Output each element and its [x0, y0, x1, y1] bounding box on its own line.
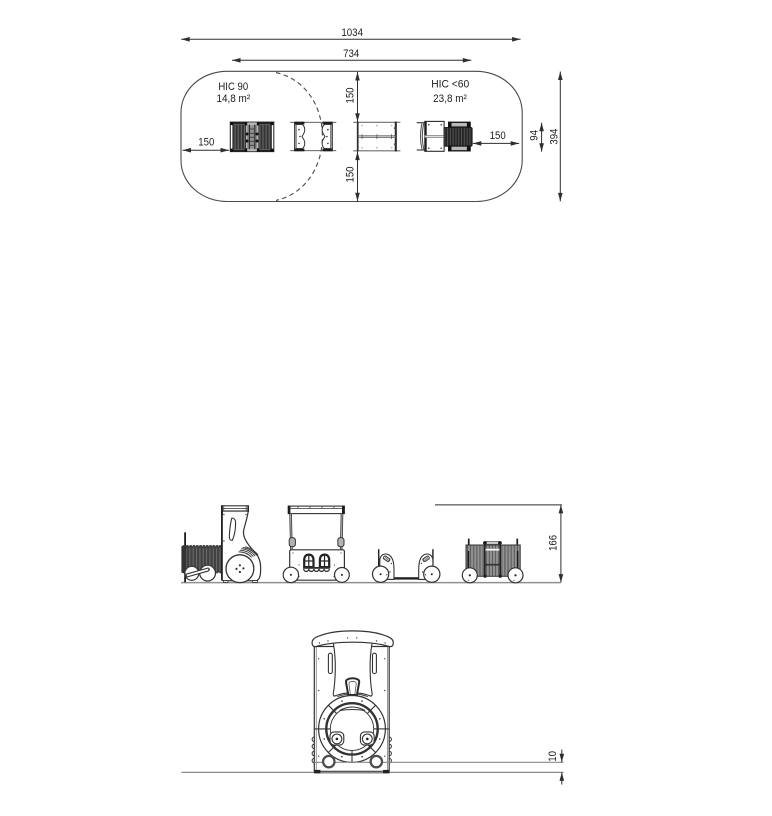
svg-text:94: 94	[529, 130, 541, 141]
svg-text:394: 394	[548, 129, 560, 145]
svg-text:150: 150	[198, 137, 214, 149]
svg-text:HIC <60: HIC <60	[431, 78, 469, 90]
svg-text:23,8 m²: 23,8 m²	[433, 93, 467, 105]
svg-text:734: 734	[343, 48, 359, 60]
svg-text:HIC 90: HIC 90	[218, 81, 248, 93]
svg-text:1034: 1034	[341, 27, 363, 39]
svg-text:10: 10	[547, 751, 559, 762]
svg-text:150: 150	[345, 88, 357, 104]
svg-text:150: 150	[345, 167, 357, 183]
svg-text:14,8 m²: 14,8 m²	[216, 93, 250, 105]
svg-text:150: 150	[490, 130, 506, 142]
svg-text:166: 166	[548, 535, 560, 551]
